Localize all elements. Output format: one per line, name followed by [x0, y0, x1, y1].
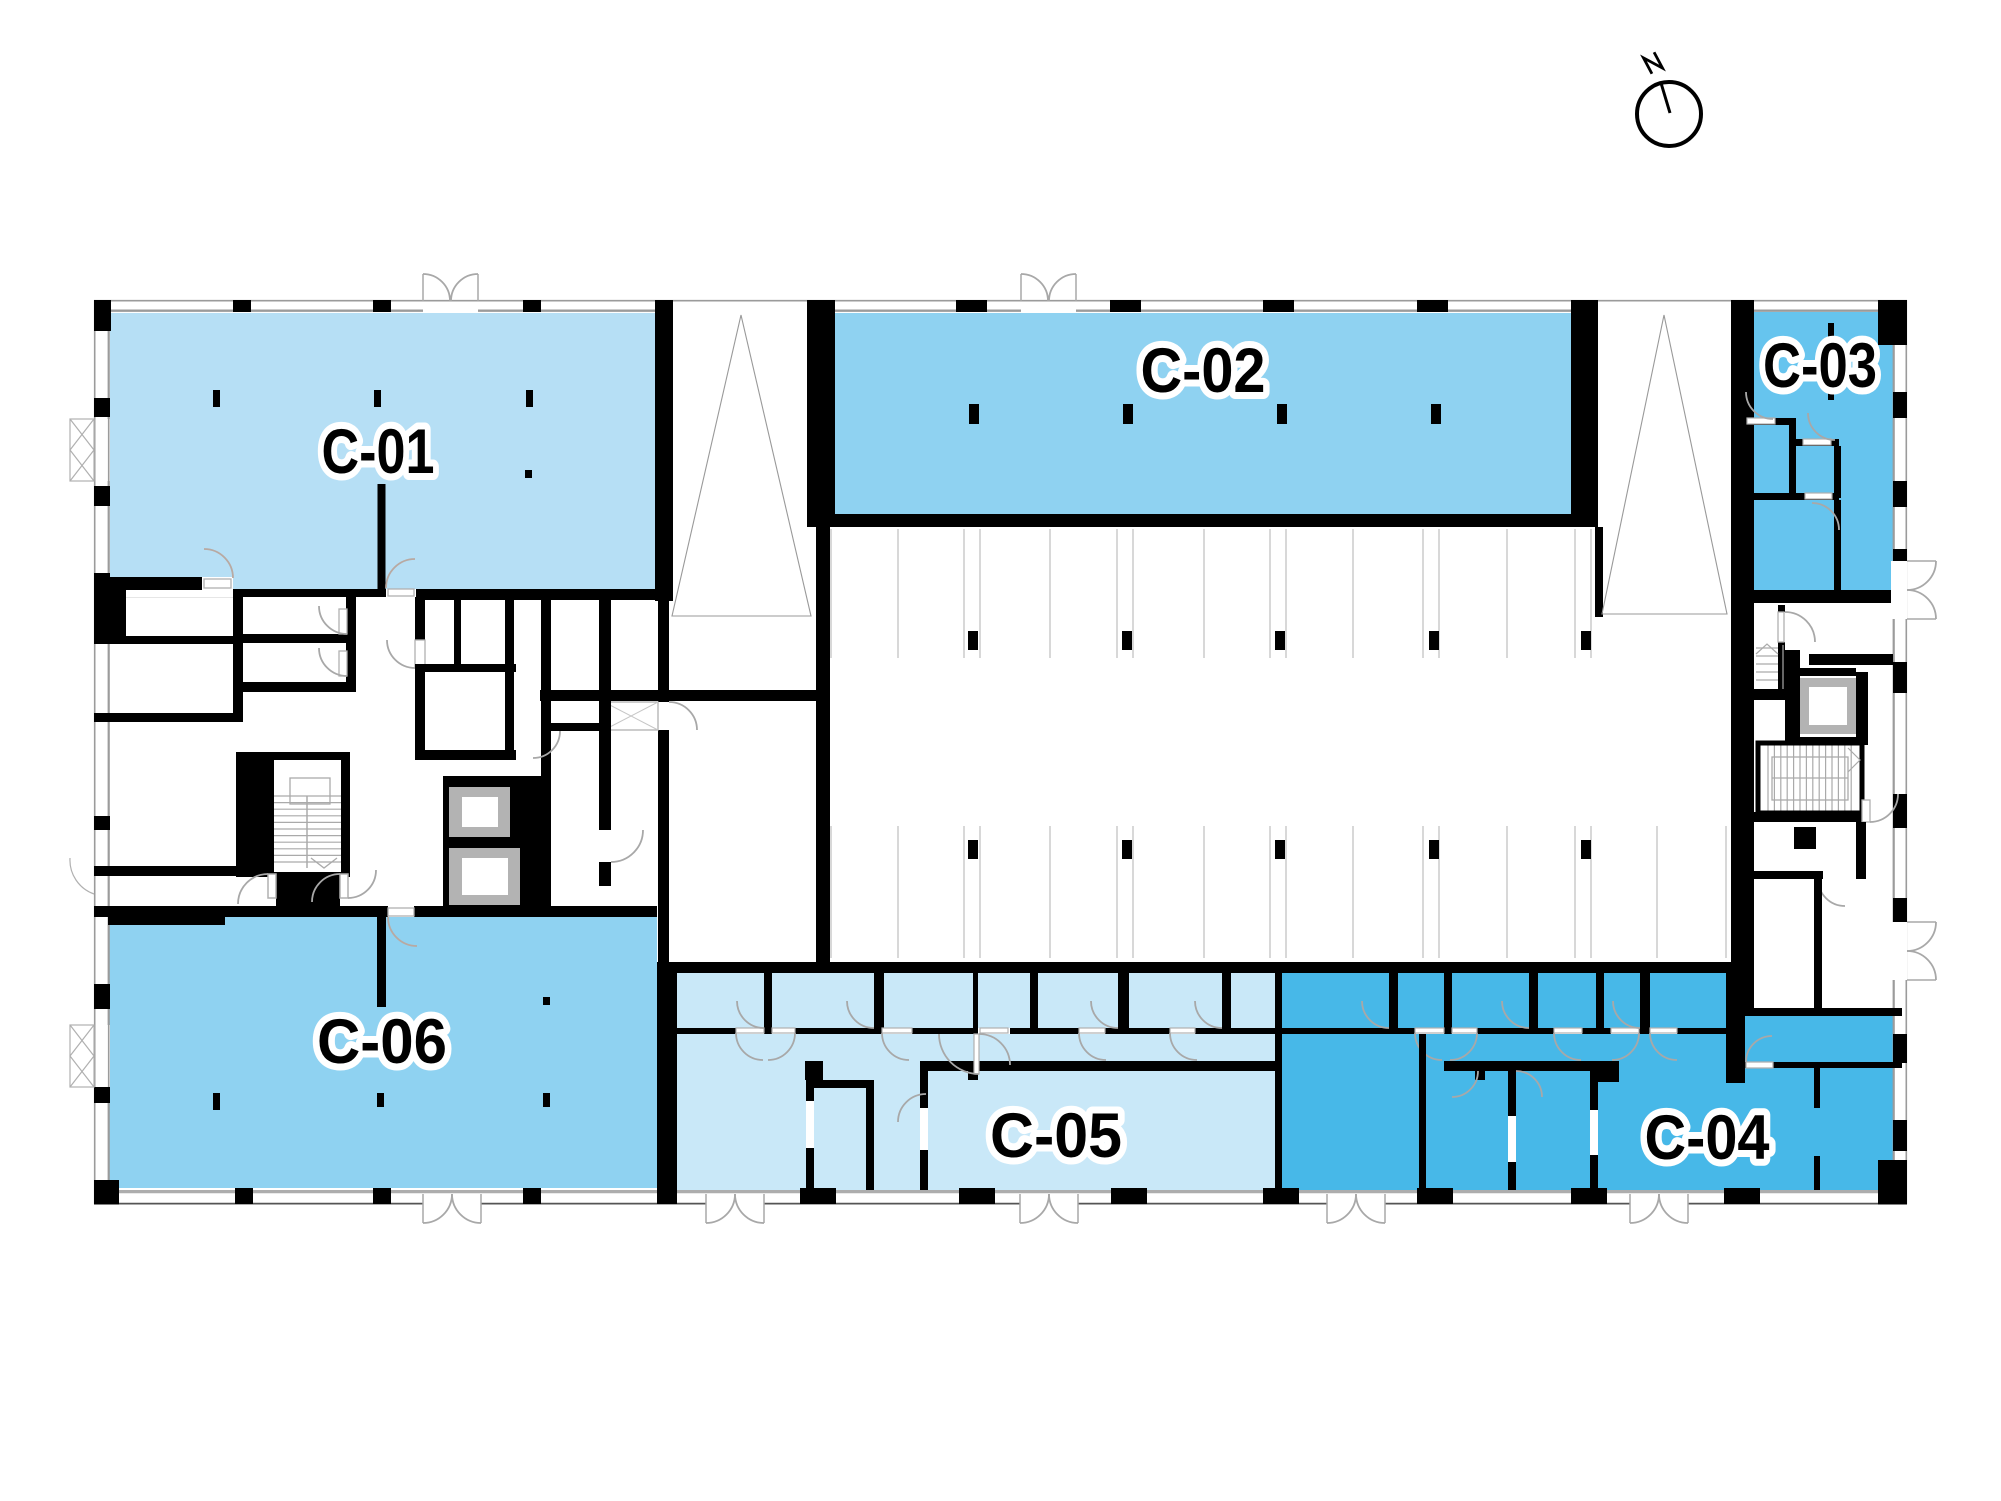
svg-text:C-02: C-02 [1141, 336, 1266, 406]
svg-text:C-05: C-05 [990, 1101, 1122, 1171]
svg-text:C-03: C-03 [1763, 331, 1877, 401]
svg-text:C-04: C-04 [1645, 1103, 1770, 1173]
svg-text:C-01: C-01 [322, 417, 435, 487]
svg-text:C-06: C-06 [317, 1007, 447, 1077]
